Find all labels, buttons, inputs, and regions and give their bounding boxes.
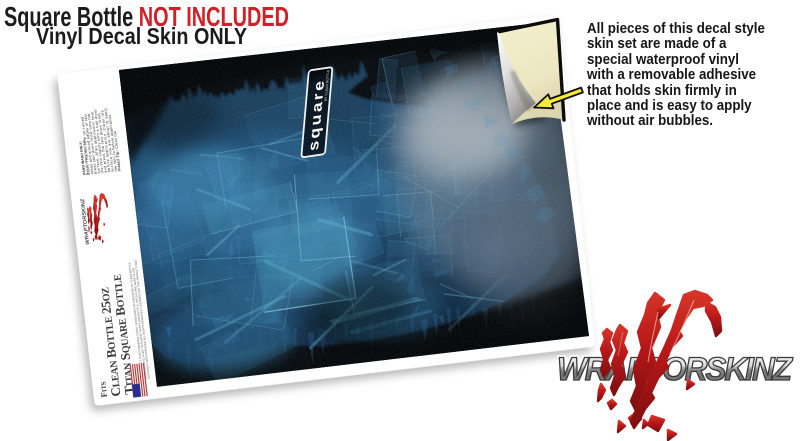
svg-text:WRAPTORSKINZ: WRAPTORSKINZ xyxy=(557,351,793,387)
